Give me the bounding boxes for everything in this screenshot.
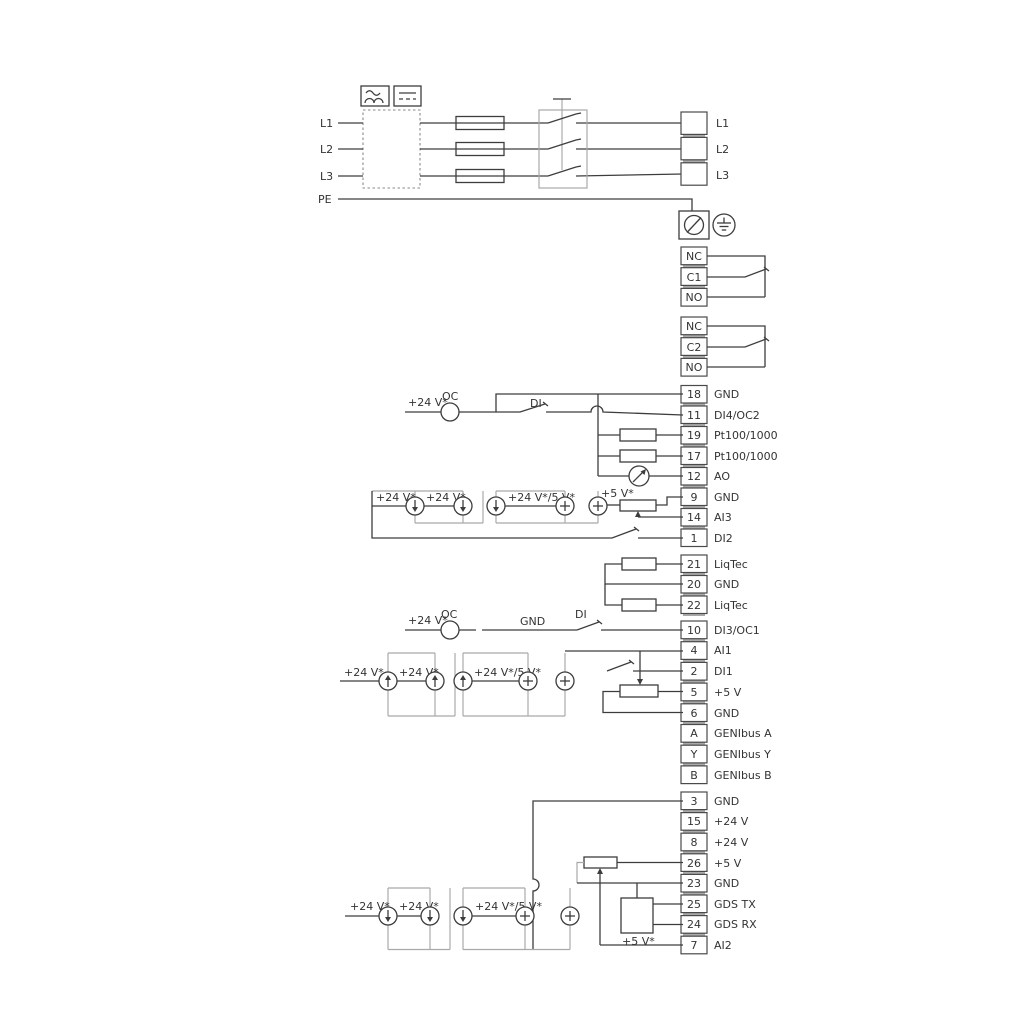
- current-source-icon: [379, 907, 397, 925]
- terminal-12-label: AO: [714, 470, 730, 483]
- terminal-19-label: Pt100/1000: [714, 429, 778, 442]
- terminal-22-label: LiqTec: [714, 599, 748, 612]
- terminal-21: 21: [687, 558, 701, 571]
- terminal-24: 24: [687, 918, 701, 931]
- input-l1-label: L1: [320, 117, 333, 130]
- gnd-wire-label: GND: [520, 615, 545, 628]
- terminal-14: 14: [687, 511, 701, 524]
- strip-c-circuitry: +24 V* OC GND DI +24 V* +24 V* +24 V*/5 …: [340, 608, 683, 716]
- setpoint-potentiometer-a: [607, 497, 683, 517]
- terminal-7-label: AI2: [714, 939, 732, 952]
- terminal-22: 22: [687, 599, 701, 612]
- strip-d-circuitry: +24 V* +24 V* +24 V*/5 V*: [345, 801, 683, 950]
- gnd-return-wire: [533, 801, 683, 950]
- terminal-4-label: AI1: [714, 644, 732, 657]
- terminal-Y: Y: [690, 748, 698, 761]
- analog-output-meter: [598, 466, 683, 486]
- di-label-b: DI: [575, 608, 587, 621]
- relay1-c1-label: C1: [687, 271, 702, 284]
- oc-output-b: [441, 621, 459, 639]
- terminal-A-label: GENIbus A: [714, 727, 772, 740]
- terminal-5-label: +5 V: [714, 686, 742, 699]
- strip-a-circuitry: +24 V* OC DI: [372, 390, 683, 538]
- terminal-26: 26: [687, 857, 701, 870]
- io-strip-c: 10 4 2 5 6 A Y B DI3/OC1 AI1 DI1 +5 V GN…: [681, 621, 772, 784]
- terminal-25-label: GDS TX: [714, 898, 756, 911]
- oc-label-b: OC: [441, 608, 458, 621]
- terminal-1: 1: [691, 532, 698, 545]
- relay2-terminal-block: NC C2 NO: [681, 317, 769, 376]
- oc-output-a: [441, 403, 459, 421]
- relay2-contact: [707, 326, 769, 367]
- io-strip-b: 21 20 22 LiqTec GND LiqTec: [605, 555, 748, 616]
- current-source-icon: [421, 907, 439, 925]
- earth-ground-icon: [713, 214, 735, 236]
- terminal-23: 23: [687, 877, 701, 890]
- terminal-20: 20: [687, 578, 701, 591]
- mains-input-section: L1 L2 L3 PE: [318, 86, 735, 239]
- gds-sensor-box: +5 V*: [621, 883, 683, 948]
- v5-label-a: +5 V*: [601, 487, 634, 500]
- input-l3-label: L3: [320, 170, 333, 183]
- pt100-sensor-1: [598, 429, 683, 441]
- pe-wire: [338, 199, 692, 211]
- terminal-7: 7: [691, 939, 698, 952]
- terminal-1-label: DI2: [714, 532, 733, 545]
- terminal-21-label: LiqTec: [714, 558, 748, 571]
- relay1-nc-label: NC: [686, 250, 702, 263]
- di3-switch: [482, 620, 683, 630]
- terminal-17: 17: [687, 450, 701, 463]
- io-strip-d: 3 15 8 26 23 25 24 7 GND +24 V +24 V +5 …: [681, 792, 757, 954]
- wiring-diagram-page: L1 L2 L3 PE: [0, 0, 1024, 1024]
- terminal-20-label: GND: [714, 578, 739, 591]
- output-l1-label: L1: [716, 117, 729, 130]
- terminal-3-label: GND: [714, 795, 739, 808]
- input-pe-label: PE: [318, 193, 332, 206]
- di4-wire-hop: [546, 406, 683, 415]
- relay1-terminal-block: NC C1 NO: [681, 247, 769, 306]
- relay2-nc-label: NC: [686, 320, 702, 333]
- current-source-icon: [454, 672, 472, 690]
- terminal-6-label: GND: [714, 707, 739, 720]
- terminal-9: 9: [691, 491, 698, 504]
- dc-symbol-icon: [394, 86, 421, 106]
- output-l3-label: L3: [716, 169, 729, 182]
- terminal-3: 3: [691, 795, 698, 808]
- current-source-icon: [454, 907, 472, 925]
- io-strip-a: 18 11 19 17 12 9 14 1 GND DI4/OC2 Pt100/…: [681, 386, 778, 547]
- main-switch: [539, 99, 587, 188]
- current-source-icon: [426, 672, 444, 690]
- terminal-11-label: DI4/OC2: [714, 409, 760, 422]
- voltage-source-icon: [519, 672, 537, 690]
- ai1-pot-circuit: [565, 651, 683, 713]
- relay1-contact: [707, 256, 769, 297]
- wiring-diagram: L1 L2 L3 PE: [0, 0, 1024, 1024]
- terminal-15-label: +24 V: [714, 815, 749, 828]
- relay2-no-label: NO: [686, 361, 703, 374]
- terminal-Y-label: GENIbus Y: [714, 748, 771, 761]
- power-output-terminal-block: L1 L2 L3: [681, 112, 729, 185]
- terminal-8-label: +24 V: [714, 836, 749, 849]
- supply-group-b: +24 V* +24 V* +24 V*/5 V*: [340, 653, 574, 716]
- pt100-sensor-2: [598, 450, 683, 462]
- terminal-12: 12: [687, 470, 701, 483]
- relay2-c2-label: C2: [687, 341, 702, 354]
- terminal-9-label: GND: [714, 491, 739, 504]
- di1-switch: [607, 660, 683, 671]
- liqtec-sensor-1: [605, 558, 683, 584]
- terminal-10: 10: [687, 624, 701, 637]
- supply-group-c: +24 V* +24 V* +24 V*/5 V*: [345, 888, 579, 950]
- oc-label-a: OC: [442, 390, 459, 403]
- terminal-8: 8: [691, 836, 698, 849]
- voltage-source-icon: [556, 497, 574, 515]
- terminal-15: 15: [687, 815, 701, 828]
- terminal-25: 25: [687, 898, 701, 911]
- terminal-26-label: +5 V: [714, 857, 742, 870]
- terminal-B: B: [690, 769, 698, 782]
- v24-label-b2: +24 V*: [344, 666, 384, 679]
- terminal-A: A: [690, 727, 698, 740]
- terminal-6: 6: [691, 707, 698, 720]
- current-source-icon: [379, 672, 397, 690]
- terminal-4: 4: [691, 644, 698, 657]
- terminal-14-label: AI3: [714, 511, 732, 524]
- ac-symbol-icon: [361, 86, 389, 106]
- terminal-10-label: DI3/OC1: [714, 624, 760, 637]
- relay1-no-label: NO: [686, 291, 703, 304]
- terminal-18: 18: [687, 388, 701, 401]
- emc-filter-box: [363, 110, 420, 188]
- current-source-icon: [487, 497, 505, 515]
- voltage-source-icon: [556, 672, 574, 690]
- terminal-11: 11: [687, 409, 701, 422]
- input-l2-label: L2: [320, 143, 333, 156]
- terminal-B-label: GENIbus B: [714, 769, 772, 782]
- terminal-18-label: GND: [714, 388, 739, 401]
- v5-label-c: +5 V*: [622, 935, 655, 948]
- voltage-source-icon: [561, 907, 579, 925]
- terminal-17-label: Pt100/1000: [714, 450, 778, 463]
- current-source-icon: [454, 497, 472, 515]
- terminal-2: 2: [691, 665, 698, 678]
- terminal-2-label: DI1: [714, 665, 733, 678]
- output-l2-label: L2: [716, 143, 729, 156]
- terminal-19: 19: [687, 429, 701, 442]
- terminal-24-label: GDS RX: [714, 918, 757, 931]
- di-box-a: [496, 394, 683, 412]
- liqtec-sensor-2: [605, 584, 683, 611]
- terminal-23-label: GND: [714, 877, 739, 890]
- pe-screw-terminal: [679, 211, 709, 239]
- phase-wires: [338, 123, 683, 176]
- voltage-source-icon: [516, 907, 534, 925]
- current-source-icon: [406, 497, 424, 515]
- terminal-5: 5: [691, 686, 698, 699]
- supply-group-a: +24 V* +24 V* +24 V*/5 V* +5 V*: [372, 487, 683, 538]
